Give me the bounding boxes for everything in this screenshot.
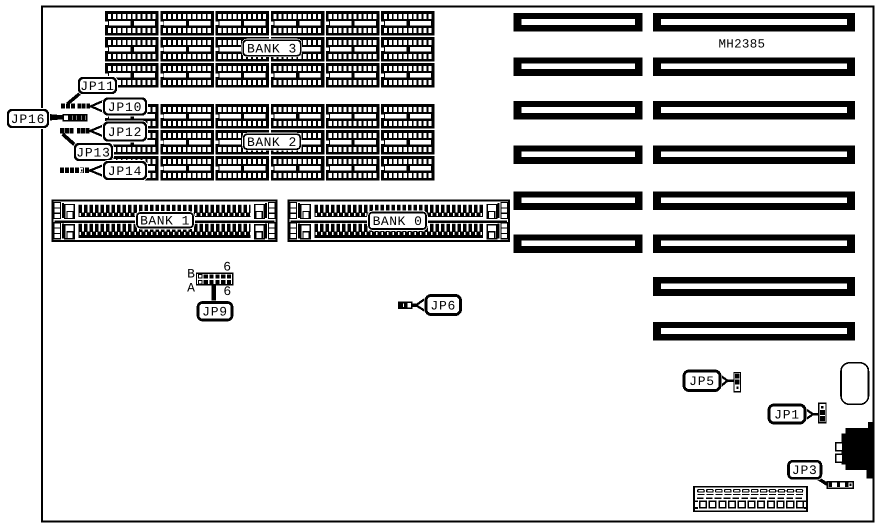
svg-text:BANK 0: BANK 0: [373, 214, 423, 229]
svg-text:B: B: [187, 266, 196, 281]
svg-text:BANK 3: BANK 3: [247, 41, 297, 56]
svg-text:JP12: JP12: [108, 125, 142, 140]
svg-text:6: 6: [223, 284, 232, 299]
svg-text:MH2385: MH2385: [719, 37, 766, 51]
svg-text:A: A: [187, 280, 196, 295]
svg-text:JP13: JP13: [76, 145, 110, 160]
svg-text:JP9: JP9: [202, 305, 228, 320]
svg-text:JP14: JP14: [108, 164, 142, 179]
svg-text:JP3: JP3: [792, 463, 818, 478]
svg-text:JP10: JP10: [108, 100, 142, 115]
svg-text:BANK 1: BANK 1: [140, 214, 190, 229]
svg-text:JP16: JP16: [11, 112, 45, 127]
svg-text:JP6: JP6: [430, 298, 456, 313]
svg-text:JP1: JP1: [774, 407, 800, 422]
svg-text:6: 6: [223, 259, 232, 274]
svg-text:JP5: JP5: [689, 374, 715, 389]
svg-text:JP11: JP11: [80, 79, 114, 94]
svg-text:BANK 2: BANK 2: [247, 135, 297, 150]
